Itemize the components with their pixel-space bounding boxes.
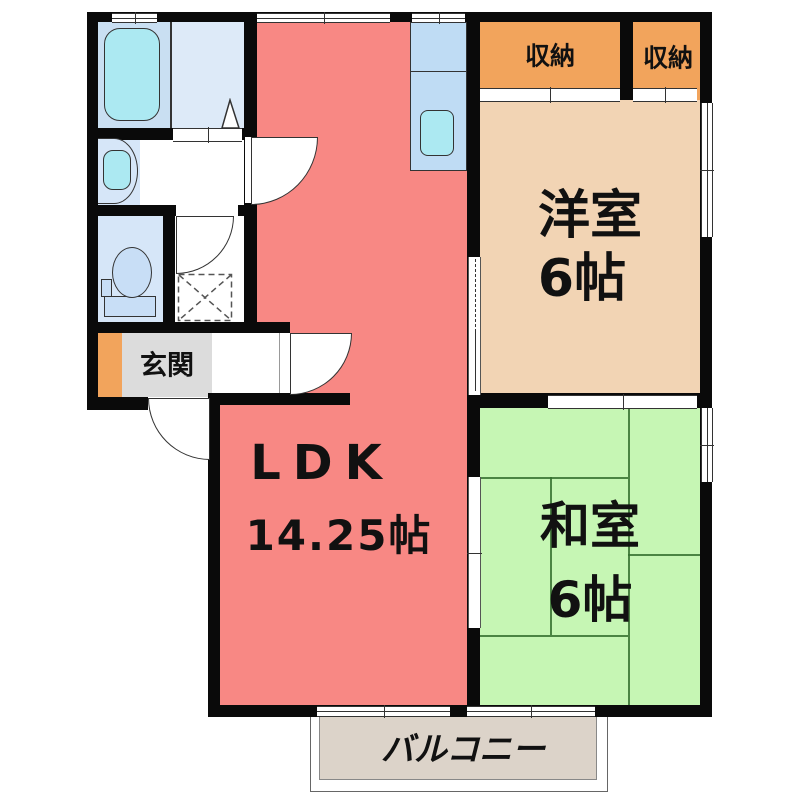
toilet-flush-handle — [101, 279, 112, 297]
closet-left-sliding-door — [480, 88, 620, 102]
tatami-line — [480, 477, 628, 479]
ldk-western-sliding-door — [468, 257, 481, 395]
toilet-tank — [104, 296, 156, 317]
western-japanese-sliding-door — [548, 395, 697, 409]
window-japanese-east — [701, 408, 713, 482]
washbasin-bowl — [103, 150, 131, 190]
closet-left-label: 収納 — [525, 44, 575, 69]
floor-hatch-icon — [177, 273, 233, 322]
window-western-east — [701, 103, 713, 237]
tatami-line — [628, 408, 630, 705]
western-room-label: 洋室 — [538, 190, 642, 242]
wall-closet-divider — [620, 12, 633, 100]
bathtub — [104, 28, 160, 121]
toilet-bowl — [112, 247, 152, 298]
closet-right-label: 収納 — [643, 46, 693, 71]
kitchen-counter-divider — [410, 71, 467, 72]
door-gap — [176, 205, 238, 216]
washroom-sliding-door — [173, 128, 242, 142]
wall-toilet-east — [163, 216, 175, 322]
sliding-door-panel — [475, 259, 476, 327]
window-kitchen — [412, 13, 465, 23]
balcony-label: バルコニー — [381, 733, 545, 766]
window-ldk-north — [257, 13, 390, 23]
entrance-step-accent — [98, 333, 122, 397]
wall-corridor-stub — [208, 393, 350, 405]
japanese-room-label: 和室 — [540, 501, 640, 551]
window-ldk-balcony — [317, 706, 450, 717]
wall-bottom — [208, 705, 712, 717]
window-japanese-balcony — [467, 706, 595, 717]
ldk-japanese-sliding-door — [468, 477, 481, 628]
kitchen-sink — [420, 110, 454, 156]
floor-plan: LDK 14.25帖 洋室 6帖 和室 6帖 収納 収納 玄関 バルコニー — [0, 0, 800, 800]
japanese-room-size-label: 6帖 — [548, 575, 633, 625]
sliding-door-panel — [475, 329, 476, 391]
wall-top — [87, 12, 712, 22]
ldk-size-label: 14.25帖 — [246, 515, 433, 557]
door-swing-entrance — [148, 398, 210, 460]
window-bath — [112, 13, 157, 23]
entrance-label: 玄関 — [140, 353, 194, 380]
tatami-line — [480, 635, 628, 637]
western-room-size-label: 6帖 — [538, 253, 626, 305]
wall-toilet-south — [87, 322, 290, 333]
hallway-upper — [140, 140, 244, 205]
washroom-door-triangle-icon — [220, 98, 241, 130]
ldk-label: LDK — [250, 439, 394, 487]
closet-right-sliding-door — [633, 88, 697, 102]
sliding-door-tick — [467, 553, 482, 554]
corridor-step-line — [279, 333, 280, 393]
